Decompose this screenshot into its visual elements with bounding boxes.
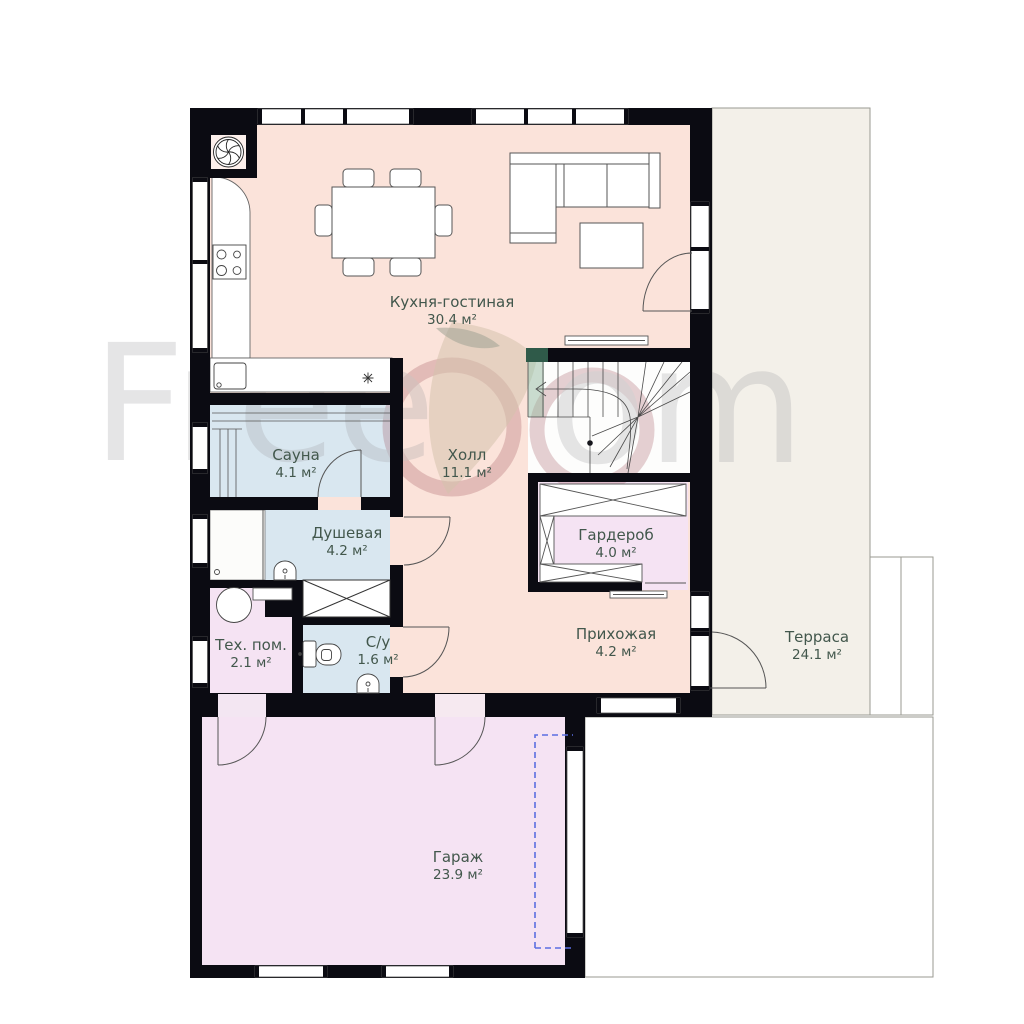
room-name: Прихожая — [576, 625, 656, 644]
wc-washbasin-icon — [357, 674, 379, 693]
room-label-wc: С/у 1.6 м² — [357, 633, 398, 669]
stair-wall-accent — [526, 348, 548, 362]
stair-entry-accent — [528, 362, 544, 417]
room-name: Тех. пом. — [215, 636, 287, 655]
room-label-hallway: Прихожая 4.2 м² — [576, 625, 656, 661]
room-name: Гардероб — [578, 526, 653, 545]
coffee-table — [580, 223, 643, 268]
room-area: 4.0 м² — [578, 545, 653, 562]
driveway-area — [585, 717, 933, 977]
room-name: Терраса — [785, 628, 849, 647]
room-area: 4.2 м² — [312, 543, 383, 560]
room-name: Гараж — [433, 848, 484, 867]
shower-washbasin-icon — [274, 561, 296, 580]
room-name: Кухня-гостиная — [390, 293, 514, 312]
room-label-shower: Душевая 4.2 м² — [312, 524, 383, 560]
room-area: 1.6 м² — [357, 652, 398, 669]
closet-unit — [303, 580, 390, 617]
room-label-hall: Холл 11.1 м² — [442, 446, 492, 482]
room-area: 24.1 м² — [785, 647, 849, 664]
room-label-sauna: Сауна 4.1 м² — [272, 446, 320, 482]
room-name: С/у — [357, 633, 398, 652]
room-label-wardrobe: Гардероб 4.0 м² — [578, 526, 653, 562]
room-area: 11.1 м² — [442, 465, 492, 482]
room-area: 4.2 м² — [576, 644, 656, 661]
room-label-terrace: Терраса 24.1 м² — [785, 628, 849, 664]
room-area: 4.1 м² — [272, 465, 320, 482]
garage-floor — [202, 717, 565, 965]
room-area: 30.4 м² — [390, 312, 514, 329]
light-point-icon — [363, 373, 374, 384]
room-area: 2.1 м² — [215, 655, 287, 672]
room-area: 23.9 м² — [433, 867, 484, 884]
room-name: Холл — [442, 446, 492, 465]
tech-equipment — [253, 588, 292, 600]
boiler-icon — [217, 588, 252, 623]
room-label-kitchen: Кухня-гостиная 30.4 м² — [390, 293, 514, 329]
room-name: Душевая — [312, 524, 383, 543]
room-name: Сауна — [272, 446, 320, 465]
room-label-tech: Тех. пом. 2.1 м² — [215, 636, 287, 672]
room-label-garage: Гараж 23.9 м² — [433, 848, 484, 884]
floor-plan-drawing: Free om — [0, 0, 1024, 1024]
stair-newel-post — [587, 440, 593, 446]
ventilation-fan-icon — [214, 137, 244, 167]
floor-plan-page: Free om — [0, 0, 1024, 1024]
